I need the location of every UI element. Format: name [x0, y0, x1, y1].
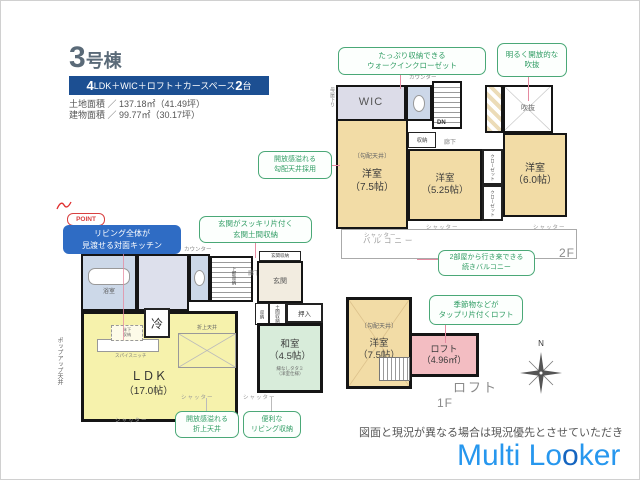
annotation-living-storage: 便利な リビング収納 — [243, 411, 301, 438]
building-number: 3 — [69, 41, 86, 74]
shutter-label: シャッター — [533, 223, 566, 231]
loft-section-label: ロフト — [453, 377, 498, 396]
oshiire-box: 押入 — [286, 303, 323, 323]
annotation-wic: たっぷり収納できる ウォークインクローゼット — [338, 47, 486, 75]
watermark: Multi Looker — [457, 439, 620, 473]
storage-2f-label: 収納 — [416, 136, 427, 144]
leader-line — [445, 325, 446, 343]
leader-line — [332, 165, 340, 166]
annotation-genkan-storage: 玄関がスッキリ片付く 玄関土間収納 — [199, 216, 312, 243]
coffered-ceiling-label: 折上天井 — [197, 325, 217, 331]
banner-num2: 2 — [235, 78, 242, 93]
room-west1-2f: 〔勾配天井〕 洋室 （7.5帖） — [336, 119, 408, 229]
fridge-space: 冷 — [144, 308, 170, 338]
washitsu-note2: （洋室仕様） — [277, 371, 304, 377]
room-wic: WIC — [336, 85, 406, 121]
watermark-part2: o — [562, 439, 579, 472]
leader-line — [255, 243, 256, 258]
spice-niche-label: スパイスニッチ — [115, 353, 146, 358]
coffered-cross-lines — [179, 334, 235, 367]
room-west1-label: 洋室 （7.5帖） — [350, 169, 394, 194]
room-west2-label: 洋室 （5.25帖） — [422, 173, 469, 197]
room-bath: 浴室 — [81, 254, 137, 311]
room-washroom: 洗 洗面室 — [137, 254, 189, 311]
compass: N — [517, 333, 565, 389]
leader-line — [206, 398, 207, 411]
shutter-label: シャッター — [115, 416, 148, 424]
shutter-label: シャッター — [181, 393, 214, 401]
page-title: 3号棟 — [69, 41, 122, 75]
point-scribble-icon — [55, 198, 73, 213]
toilet-icon — [194, 270, 205, 286]
leader-line — [400, 75, 401, 89]
closet-2-label: クローゼット — [490, 190, 496, 217]
leader-line — [528, 77, 529, 101]
coffered-ceiling-box — [178, 333, 236, 368]
room-wic-label: WIC — [359, 96, 383, 110]
room-washitsu: 和室 （4.5帖） 縁なしタタミ （洋室仕様） — [257, 323, 323, 393]
room-west3-label: 洋室 （6.0帖） — [513, 163, 557, 188]
room-loft: ロフト （4.96㎡） — [409, 333, 479, 377]
annotation-void: 明るく開放的な 吹抜 — [497, 43, 567, 77]
loft-ladder — [379, 357, 410, 381]
watermark-part1: Multi Lo — [457, 439, 562, 472]
doma-storage-label: 土間収納 — [275, 305, 281, 323]
leader-line — [417, 259, 438, 260]
counter-label-1f: カウンター — [184, 247, 212, 254]
sloped-ceiling-tag: 〔勾配天井〕 — [354, 154, 390, 162]
room-loft-label: ロフト （4.96㎡） — [422, 344, 467, 367]
floor-label-2f: 2F — [559, 246, 575, 260]
floorplan-sheet: 3号棟 4LDK＋WIC＋ロフト＋カースペース2台 土地面積 ／ 137.18㎡… — [0, 0, 640, 480]
storage-box-1f: 収納 — [255, 303, 269, 325]
leader-line — [123, 254, 124, 340]
room-genkan: 玄関 — [257, 261, 303, 303]
room-west3-2f: 洋室 （6.0帖） — [503, 133, 567, 217]
leader-line — [271, 397, 272, 411]
underfloor-storage: 床下 収納 — [111, 325, 143, 341]
shutter-label: シャッター — [426, 223, 459, 231]
sloped-ceiling-tag-loft: 〔勾配天井〕 — [361, 324, 397, 332]
land-area: 土地面積 ／ 137.18㎡（41.49坪） — [69, 99, 205, 110]
storage-2f: 収納 — [408, 132, 436, 148]
popup-ceiling-label: ポップアップ天井 — [55, 337, 64, 385]
annotation-balcony: 2部屋から行き来できる 続きバルコニー — [438, 250, 535, 276]
room-bath-label: 浴室 — [103, 289, 115, 297]
ldk-label: ＬＤＫ — [96, 369, 201, 383]
toilet-icon — [413, 95, 425, 112]
room-west2-2f: 洋室 （5.25帖） — [408, 149, 482, 221]
building-suffix: 号棟 — [86, 51, 122, 71]
compass-n-label: N — [538, 339, 544, 348]
doma-storage-box: 土間収納 — [269, 303, 286, 325]
closet-1-label: クローゼット — [490, 154, 496, 181]
banner-mid: LDK＋WIC＋ロフト＋カースペース — [94, 79, 235, 92]
washitsu-label: 和室 （4.5帖） — [269, 339, 311, 363]
building-area: 建物面積 ／ 99.77㎡（30.17坪） — [69, 110, 200, 121]
room-toilet-1f — [189, 254, 210, 302]
oshiire-label: 押入 — [298, 308, 311, 318]
genkan-storage-box: 玄関収納 — [259, 251, 301, 261]
layout-banner: 4LDK＋WIC＋ロフト＋カースペース2台 — [69, 76, 269, 95]
banner-suffix: 台 — [242, 79, 251, 92]
roof-slope-label: 母屋下り — [329, 87, 335, 107]
closet-1: クローゼット — [482, 149, 503, 185]
room-void-label: 吹抜 — [521, 105, 535, 114]
hallway-label-2f: 廊下 — [444, 140, 456, 147]
banner-num1: 4 — [87, 78, 94, 93]
upper-storage-label: 上部収納 — [231, 267, 237, 285]
roof-hatch — [485, 85, 503, 133]
compass-rose-icon — [519, 351, 563, 395]
genkan-storage-label: 玄関収納 — [271, 253, 289, 259]
annotation-coffered-ceiling: 開放感溢れる 折上天井 — [175, 411, 239, 438]
room-toilet-2f — [406, 85, 432, 121]
annotation-loft: 季節物などが タップリ片付くロフト — [429, 295, 523, 325]
genkan-label: 玄関 — [273, 278, 287, 287]
watermark-part3: ker — [579, 439, 621, 472]
shutter-label: シャッター — [364, 231, 397, 239]
annotation-sloped-ceiling: 開放感溢れる 勾配天井採用 — [258, 151, 332, 179]
annotation-point-kitchen: リビング全体が 見渡せる対面キッチン — [63, 225, 181, 254]
storage-box-label: 収納 — [259, 310, 265, 319]
floor-label-1f: 1F — [437, 396, 453, 410]
closet-2: クローゼット — [482, 185, 503, 221]
stairs-dn-label: DN — [437, 120, 446, 127]
fridge-label: 冷 — [151, 315, 163, 332]
